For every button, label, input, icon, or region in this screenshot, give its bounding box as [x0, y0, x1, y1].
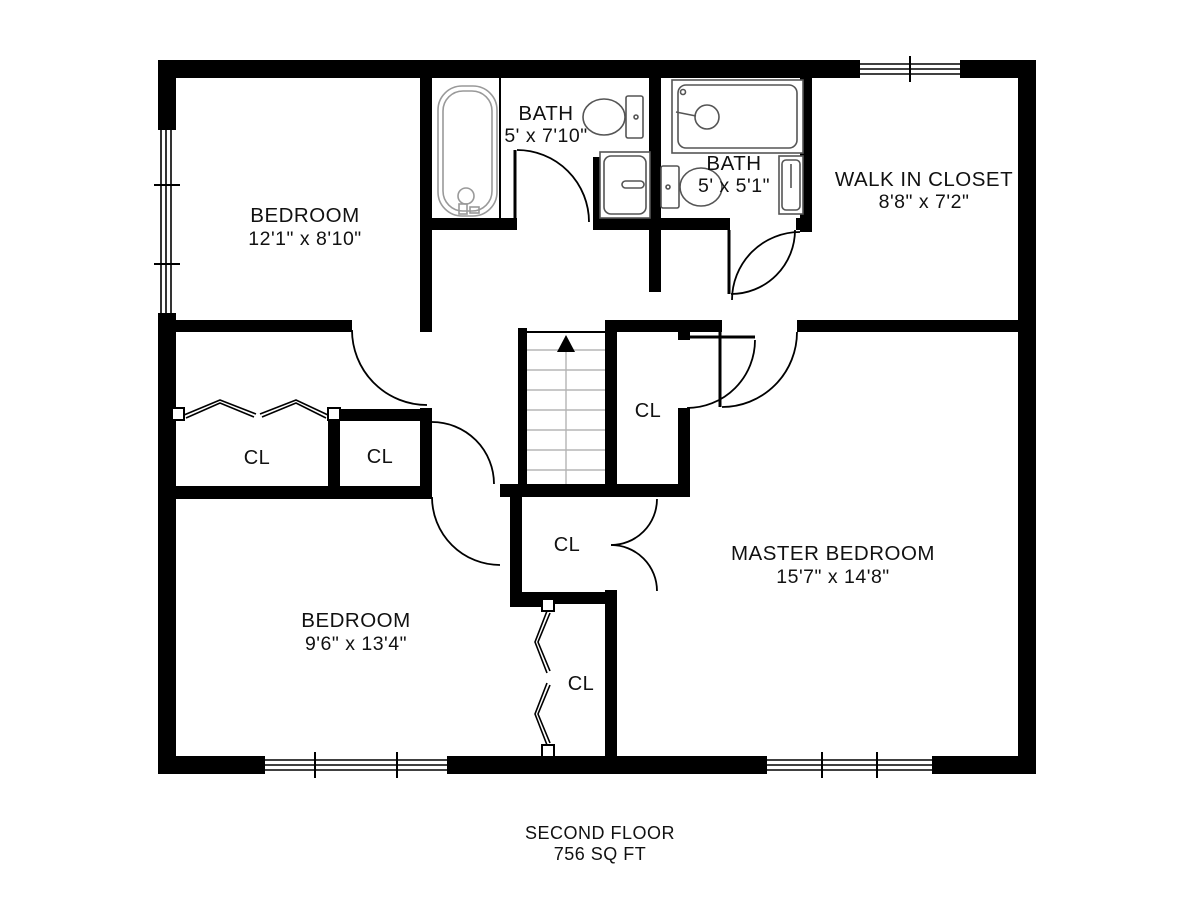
bedroom1-dims: 12'1" x 8'10" [248, 228, 361, 250]
wall-bedroom1-bath1 [420, 78, 432, 332]
wall-right [1018, 60, 1036, 774]
wall-master-north-left [605, 320, 722, 332]
shower-icon-bath2 [672, 80, 803, 153]
floor-title: SECOND FLOOR [525, 823, 675, 843]
bath2-dims: 5' x 5'1" [698, 175, 770, 197]
wall-bottom-mid-segment [447, 756, 767, 774]
wall-cl-right-east [678, 408, 690, 486]
room-label-bath2: BATH 5' x 5'1" [698, 152, 770, 197]
wall-left-upper-segment [158, 60, 176, 130]
wall-bath2-south-left [661, 218, 730, 230]
wall-bedroom1-south [158, 320, 352, 332]
wall-cl-under-stairs-south [515, 592, 617, 604]
window-bottom-master [767, 752, 932, 778]
room-label-bedroom2: BEDROOM 9'6" x 13'4" [301, 609, 410, 655]
bath1-dims: 5' x 7'10" [504, 125, 587, 147]
hall-closet-bifold-doors [172, 400, 340, 420]
wall-top-left-segment [158, 60, 860, 78]
master-bedroom-door [720, 332, 797, 407]
toilet-icon-bath1 [583, 96, 643, 138]
under-stairs-closet-door-top-arc [611, 499, 657, 545]
wall-bottom-right-segment [932, 756, 1036, 774]
walk-in-closet-name: WALK IN CLOSET [835, 168, 1013, 191]
closet-label-hall-right: CL [367, 446, 394, 468]
bifold-hinge-block [328, 408, 340, 420]
bedroom1-door-arc [352, 330, 427, 405]
stairs [518, 328, 605, 486]
master-bedroom-dims: 15'7" x 14'8" [776, 566, 889, 588]
sink-vanity-icon-bath1 [600, 152, 650, 218]
wall-cl2-east [420, 408, 432, 486]
window-left-bedroom1 [154, 130, 180, 313]
wall-master-north-right [797, 320, 1018, 332]
closet-label-under-stairs: CL [554, 534, 581, 556]
bathtub-icon [438, 86, 497, 216]
wall-spine-upper [605, 332, 617, 484]
window-bottom-bedroom2 [265, 752, 447, 778]
under-stairs-closet-door-bottom-arc [611, 545, 657, 591]
room-label-master-bedroom: MASTER BEDROOM 15'7" x 14'8" [731, 542, 935, 588]
bath2-door [729, 230, 795, 294]
closet-label-hall-left: CL [244, 447, 271, 469]
wall-cl1-cl2-divider [328, 415, 340, 486]
bifold-hinge-block [542, 599, 554, 611]
wall-hall-south [158, 486, 432, 499]
fixture-layer [438, 80, 803, 218]
window-layer [154, 56, 960, 778]
wall-spine-lower [605, 590, 617, 757]
wall-left-lower-segment [158, 313, 176, 774]
bedroom2-closet-bifold-doors [535, 599, 554, 757]
bifold-layer [172, 400, 554, 757]
bedroom2-name: BEDROOM [301, 609, 410, 632]
room-label-bath1: BATH 5' x 7'10" [504, 102, 587, 147]
sink-vanity-icon-bath2 [779, 156, 803, 214]
bedroom1-name: BEDROOM [250, 204, 359, 227]
bath1-name: BATH [518, 102, 573, 125]
room-label-walk-in-closet: WALK IN CLOSET 8'8" x 7'2" [835, 168, 1013, 213]
walk-in-closet-door-arc [732, 232, 800, 300]
wall-stairs-south [500, 484, 690, 497]
closet-label-right-of-stairs: CL [635, 400, 662, 422]
hall-closet-door-arc [432, 422, 494, 484]
floor-area: 756 SQ FT [554, 844, 647, 864]
floor-title-block: SECOND FLOOR 756 SQ FT [525, 823, 675, 864]
bath2-name: BATH [706, 152, 761, 175]
walk-in-closet-dims: 8'8" x 7'2" [879, 191, 970, 213]
wall-bath1-south-left [432, 218, 517, 230]
bifold-hinge-block [172, 408, 184, 420]
bath1-door [515, 150, 589, 222]
floor-plan-page: BEDROOM 12'1" x 8'10" BATH 5' x 7'10" BA… [0, 0, 1200, 900]
master-bedroom-name: MASTER BEDROOM [731, 542, 935, 565]
closet-label-bedroom2: CL [568, 673, 595, 695]
bifold-hinge-block [542, 745, 554, 757]
stairs-west-wall [518, 328, 527, 486]
room-label-bedroom1: BEDROOM 12'1" x 8'10" [248, 204, 361, 250]
wall-cl2-north [328, 409, 421, 421]
wall-bedroom2-east [510, 497, 522, 601]
bedroom2-dims: 9'6" x 13'4" [305, 633, 407, 655]
bedroom2-door-arc [432, 497, 500, 565]
window-top-walk-in-closet [860, 56, 960, 82]
floor-plan-drawing: BEDROOM 12'1" x 8'10" BATH 5' x 7'10" BA… [0, 0, 1200, 900]
stairs-up-arrow-icon [557, 335, 575, 352]
